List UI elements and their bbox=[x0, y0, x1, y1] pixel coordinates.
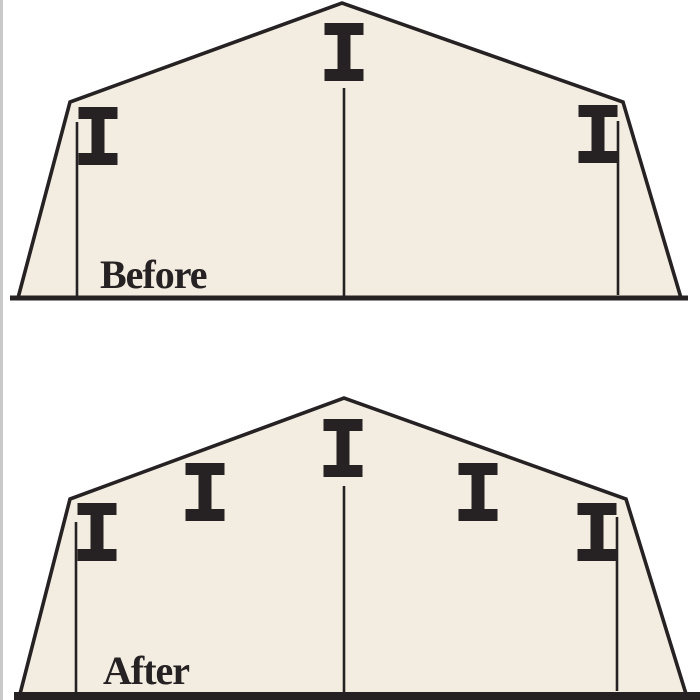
ibeam-top-flange bbox=[459, 463, 498, 475]
shed-roof-diagram: Before After bbox=[0, 0, 700, 700]
after-panel: After bbox=[14, 398, 700, 696]
ibeam-top-flange bbox=[579, 105, 618, 117]
ibeam-web bbox=[338, 34, 351, 70]
after-label: After bbox=[103, 648, 189, 693]
ibeam-top-flange bbox=[186, 463, 225, 475]
ibeam-bottom-flange bbox=[78, 549, 117, 561]
ibeam-top-flange bbox=[324, 419, 363, 431]
ibeam-top-flange bbox=[78, 503, 117, 515]
before-panel: Before bbox=[10, 3, 688, 298]
ibeam-bottom-flange bbox=[186, 509, 225, 521]
left-edge-strip bbox=[0, 0, 3, 700]
ibeam-web bbox=[337, 430, 350, 466]
ibeam-web bbox=[199, 474, 212, 510]
ibeam-bottom-flange bbox=[79, 153, 118, 165]
ibeam-web bbox=[592, 116, 605, 152]
ibeam-top-flange bbox=[325, 23, 364, 35]
ibeam-bottom-flange bbox=[324, 465, 363, 477]
ibeam-bottom-flange bbox=[578, 549, 617, 561]
before-after-diagram: Before After bbox=[0, 0, 700, 700]
ibeam-web bbox=[591, 514, 604, 550]
ibeam-bottom-flange bbox=[459, 509, 498, 521]
ibeam-web bbox=[92, 118, 105, 154]
ibeam-top-flange bbox=[578, 503, 617, 515]
ibeam-bottom-flange bbox=[579, 151, 618, 163]
before-label: Before bbox=[100, 252, 207, 297]
ibeam-top-flange bbox=[79, 107, 118, 119]
ibeam-bottom-flange bbox=[325, 69, 364, 81]
ibeam-web bbox=[91, 514, 104, 550]
ibeam-web bbox=[472, 474, 485, 510]
